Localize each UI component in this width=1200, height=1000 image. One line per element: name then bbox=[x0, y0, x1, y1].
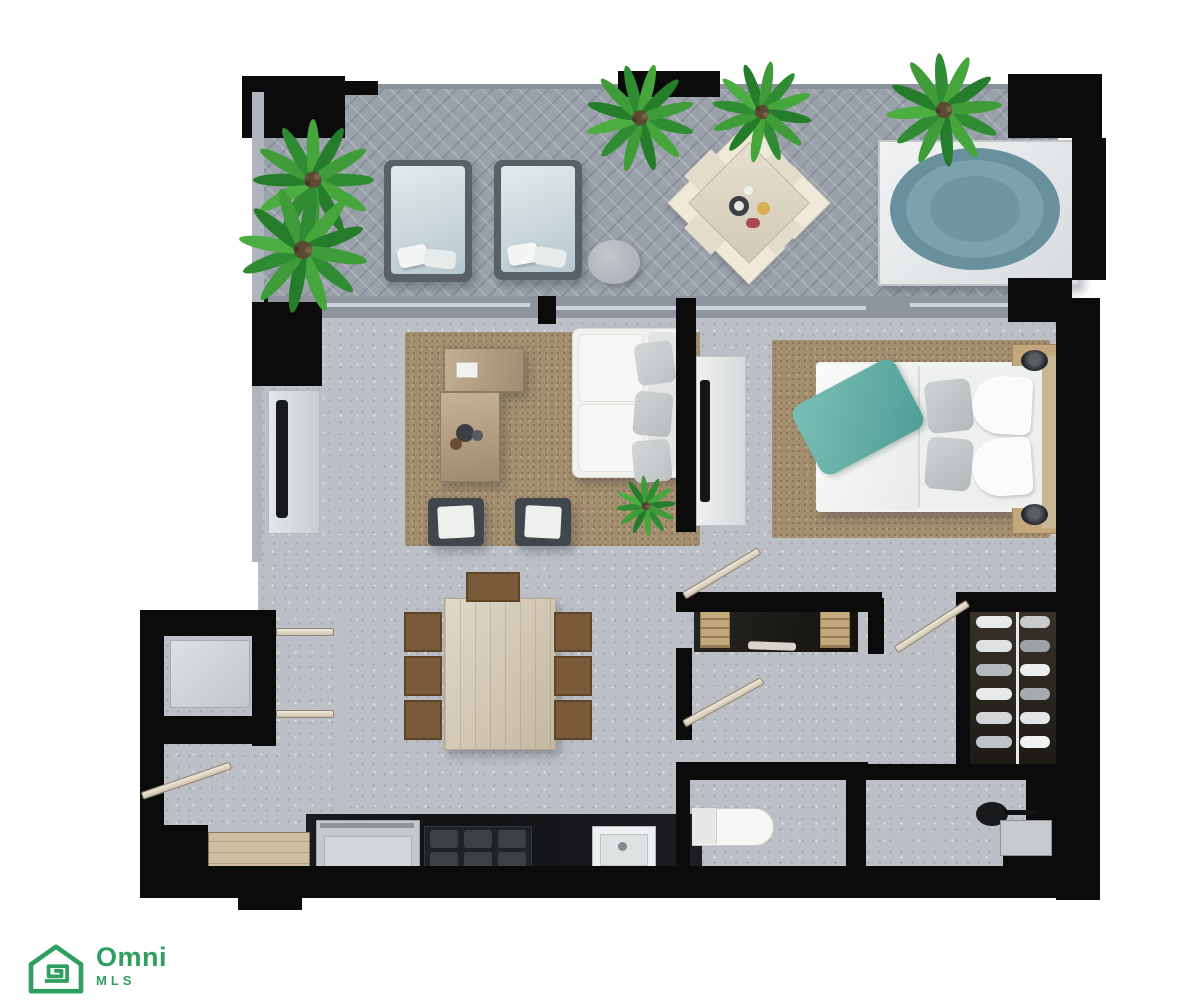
decor-bowl bbox=[472, 430, 483, 441]
potted-palm bbox=[237, 184, 369, 316]
range-handle bbox=[320, 823, 414, 828]
hanging-garment bbox=[976, 688, 1012, 700]
dining-chair bbox=[404, 612, 442, 652]
bed-headboard bbox=[1042, 356, 1056, 528]
brand-logo: Omni MLS bbox=[28, 944, 167, 994]
dining-chair bbox=[554, 612, 592, 652]
wall-vanity-right bbox=[868, 598, 884, 654]
wall-toilet-left bbox=[676, 780, 690, 880]
wall-right-main bbox=[1056, 298, 1100, 900]
hanging-garment bbox=[1020, 616, 1050, 628]
sofa-pillow bbox=[633, 340, 676, 387]
cup bbox=[744, 186, 753, 195]
foyer-closet-door bbox=[276, 628, 334, 636]
round-side-table bbox=[588, 240, 640, 284]
wall-hall-left bbox=[676, 592, 882, 612]
cooktop-grate bbox=[498, 830, 526, 848]
dining-chair bbox=[404, 700, 442, 740]
hanging-garment bbox=[1020, 712, 1050, 724]
potted-palm bbox=[710, 60, 814, 164]
wall-hall-right bbox=[968, 592, 1058, 612]
dining-chair bbox=[554, 656, 592, 696]
shower-bench bbox=[1000, 820, 1052, 856]
food-bowl bbox=[757, 202, 770, 215]
wall-closet-left bbox=[956, 592, 970, 774]
sink-faucet bbox=[618, 842, 627, 851]
wall-bottom-notch bbox=[238, 866, 302, 910]
potted-palm bbox=[885, 51, 1003, 169]
hanging-garment bbox=[976, 616, 1012, 628]
wall-right-upper bbox=[1072, 138, 1106, 280]
bed-pillow-gray bbox=[923, 378, 974, 435]
toilet-tank bbox=[692, 808, 717, 844]
omni-house-spiral-icon bbox=[28, 944, 84, 994]
bedroom-television bbox=[700, 380, 710, 502]
cooktop-grate bbox=[430, 830, 458, 848]
wall-shower-top bbox=[866, 764, 1032, 780]
hanging-garment bbox=[976, 640, 1012, 652]
brand-subname: MLS bbox=[96, 974, 167, 987]
sliding-door-rail bbox=[556, 306, 866, 310]
hanging-garment bbox=[976, 664, 1012, 676]
washer bbox=[170, 640, 250, 708]
dining-chair bbox=[466, 572, 520, 602]
table-lamp bbox=[1021, 504, 1048, 525]
range-door bbox=[324, 836, 412, 868]
vanity-tray bbox=[748, 641, 796, 651]
wall-toilet-right bbox=[846, 762, 866, 880]
dining-table bbox=[444, 598, 556, 750]
potted-palm bbox=[584, 62, 696, 174]
brand-logo-text: Omni MLS bbox=[96, 944, 167, 987]
wardrobe-rail-pole bbox=[1016, 596, 1019, 770]
sofa-seat-cushion bbox=[578, 334, 644, 402]
plate bbox=[729, 196, 749, 216]
tray bbox=[456, 362, 478, 378]
television bbox=[276, 400, 288, 518]
floorplan-canvas: Omni MLS bbox=[0, 0, 1200, 1000]
foyer-closet-door bbox=[276, 710, 334, 718]
hanging-garment bbox=[1020, 664, 1050, 676]
hot-tub-water-center bbox=[930, 176, 1020, 242]
wall-top-right-block bbox=[1008, 74, 1102, 138]
lounger-pillow bbox=[423, 248, 457, 270]
bed-pillow-gray bbox=[924, 436, 974, 492]
shower-arm bbox=[1004, 810, 1036, 815]
wall-bottom-left-thick bbox=[140, 825, 208, 895]
hanging-garment bbox=[1020, 688, 1050, 700]
decor-bowl bbox=[450, 438, 462, 450]
dining-chair bbox=[554, 700, 592, 740]
sofa-pillow bbox=[632, 390, 674, 437]
table-lamp bbox=[1021, 350, 1048, 371]
wall-bedroom-divider bbox=[676, 298, 696, 532]
hanging-garment bbox=[1020, 640, 1050, 652]
hanging-garment bbox=[1020, 736, 1050, 748]
dining-chair bbox=[404, 656, 442, 696]
wall-bath-left bbox=[676, 648, 692, 740]
wall-toilet-top bbox=[676, 762, 868, 780]
sliding-door-post bbox=[538, 296, 556, 324]
hanging-garment bbox=[976, 736, 1012, 748]
wall-foyer-closet-bottom bbox=[148, 716, 274, 744]
vanity-basket bbox=[820, 610, 850, 648]
cooktop-grate bbox=[464, 830, 492, 848]
wall-living-left bbox=[252, 386, 262, 562]
armchair-cushion bbox=[437, 505, 475, 539]
wall-top-left-tab bbox=[345, 81, 378, 95]
food-berries bbox=[746, 218, 760, 228]
vanity-basket bbox=[700, 610, 730, 648]
hanging-garment bbox=[976, 712, 1012, 724]
brand-name: Omni bbox=[96, 944, 167, 971]
armchair-cushion bbox=[524, 505, 562, 539]
potted-palm bbox=[615, 475, 677, 537]
